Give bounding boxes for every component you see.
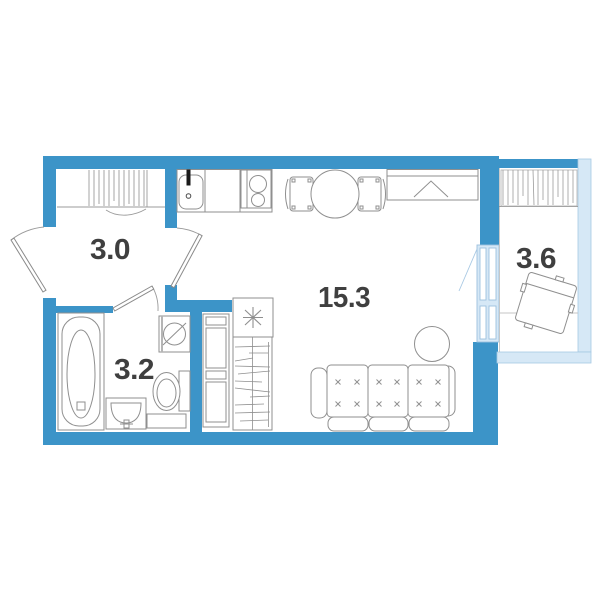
- wall-top: [43, 156, 499, 169]
- wall-right-lower: [473, 342, 498, 445]
- sofa-armrest-left: [311, 368, 327, 418]
- entrance-door: [11, 227, 46, 292]
- sofa-seat: [409, 417, 449, 431]
- sofa-seat: [328, 417, 368, 431]
- floor-plan-page: 3.0 3.2 15.3 3.6: [0, 0, 600, 600]
- balcony-wall-top: [499, 159, 578, 168]
- balcony-glazing-bottom: [497, 352, 591, 363]
- dining-table: [311, 170, 359, 218]
- balcony-area-label: 3.6: [516, 243, 556, 275]
- stove: [241, 170, 271, 208]
- hall-closet: [57, 170, 165, 215]
- living-room-area-label: 15.3: [318, 282, 370, 314]
- wall-hall-kitchen: [165, 169, 177, 228]
- balcony-glazing-right: [578, 159, 591, 352]
- washing-machine: [159, 316, 190, 352]
- tall-cabinet: [203, 314, 229, 427]
- armchair: [511, 267, 582, 339]
- toilet-pedestal: [147, 414, 186, 428]
- kitchen-sink: [179, 170, 203, 210]
- refrigerator: [233, 298, 273, 337]
- faucet: [187, 170, 191, 186]
- bathroom-sink: [106, 398, 146, 429]
- wall-closet-top: [165, 300, 232, 312]
- dining-set: [286, 170, 386, 218]
- sofa-cushion: [368, 365, 408, 417]
- balcony-door-swing: [459, 249, 477, 291]
- wall-left-lower: [43, 298, 56, 445]
- sofa-seat: [369, 417, 408, 431]
- hall-area-label: 3.0: [90, 234, 130, 266]
- dining-chair-left: [286, 177, 314, 211]
- wall-bathroom-top: [43, 306, 113, 313]
- bathtub: [58, 313, 104, 430]
- storage-block: [203, 298, 273, 430]
- dining-chair-right: [358, 177, 386, 211]
- wall-bathroom-closet: [190, 312, 202, 432]
- wall-right-upper: [480, 156, 499, 247]
- drying-rack: [501, 170, 577, 206]
- wall-bottom: [43, 432, 498, 445]
- bathroom-area-label: 3.2: [114, 354, 154, 386]
- sofa-cushion: [408, 365, 449, 417]
- wardrobe-shelves: [233, 337, 272, 430]
- bathroom-door: [113, 286, 158, 311]
- wall-left-upper: [43, 156, 56, 227]
- sofa-cushion: [327, 365, 368, 417]
- sofa: [311, 365, 455, 431]
- floor-plan: 3.0 3.2 15.3 3.6: [0, 0, 600, 600]
- balcony-window: [459, 245, 499, 342]
- wardrobe: [387, 170, 478, 201]
- interior-door: [171, 228, 202, 288]
- kitchen-counter: [177, 170, 272, 213]
- side-table: [415, 327, 450, 362]
